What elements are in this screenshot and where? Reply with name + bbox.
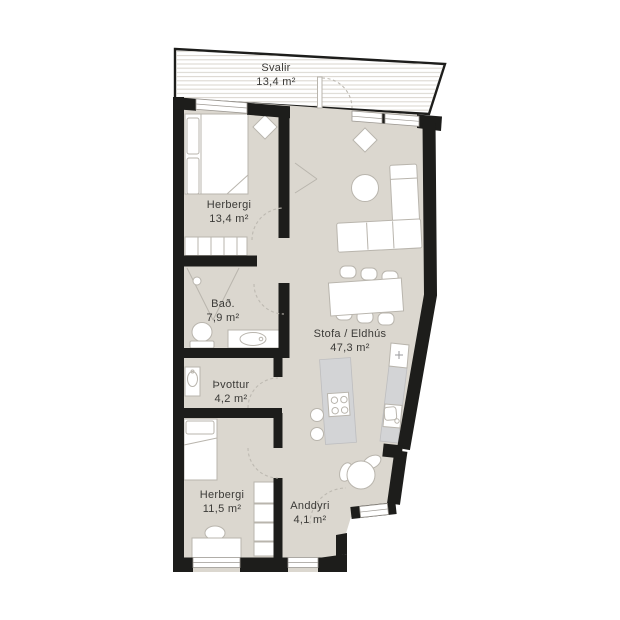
exterior-wall-top	[173, 97, 196, 111]
coffee-table	[352, 175, 379, 202]
room-area-bad: 7,9 m²	[207, 312, 240, 324]
exterior-wall-bottom	[318, 558, 340, 573]
toilet	[190, 323, 214, 349]
exterior-wall-bottom	[240, 558, 288, 573]
room-label-svalir: Svalir	[261, 62, 290, 74]
kitchen-end-wall	[383, 450, 402, 452]
double-bed	[185, 114, 248, 194]
exterior-wall-right-lower	[394, 451, 402, 504]
desk	[192, 538, 241, 558]
room-label-anddyri: Anddyri	[290, 500, 329, 512]
room-area-stofa-eldhus: 47,3 m²	[330, 342, 369, 354]
window	[288, 558, 318, 568]
laundry-sink	[185, 367, 200, 396]
kitchen-island	[320, 358, 357, 445]
room-label-thvottur: Þvottur	[213, 379, 250, 391]
entry-wall-stub	[336, 533, 347, 556]
floor-plan: Svalir 13,4 m² Herbergi 13,4 m² Bað. 7,9…	[0, 0, 620, 620]
room-label-herbergi-1: Herbergi	[207, 199, 252, 211]
room-area-svalir: 13,4 m²	[256, 76, 295, 88]
room-area-anddyri: 4,1 m²	[294, 514, 327, 526]
single-bed	[184, 419, 217, 480]
room-label-bad: Bað.	[211, 298, 235, 310]
room-label-stofa-eldhus: Stofa / Eldhús	[314, 328, 387, 340]
bar-stool	[311, 409, 324, 422]
room-area-herbergi-1: 13,4 m²	[209, 213, 248, 225]
kitchen-appliance	[389, 343, 409, 368]
wardrobe	[185, 237, 247, 256]
window	[385, 114, 419, 127]
room-area-herbergi-2: 11,5 m²	[203, 503, 242, 515]
window	[352, 111, 382, 123]
balcony-door-leaf	[318, 77, 323, 108]
kitchen-sink	[383, 404, 402, 428]
closet	[254, 482, 274, 556]
bar-stool	[311, 428, 324, 441]
room-label-herbergi-2: Herbergi	[200, 489, 245, 501]
dining-table	[328, 278, 403, 316]
exterior-wall-left	[173, 97, 184, 572]
sink-vanity	[228, 330, 279, 348]
room-area-thvottur: 4,2 m²	[215, 393, 248, 405]
window	[193, 558, 240, 568]
exterior-wall-bottom	[173, 558, 193, 573]
